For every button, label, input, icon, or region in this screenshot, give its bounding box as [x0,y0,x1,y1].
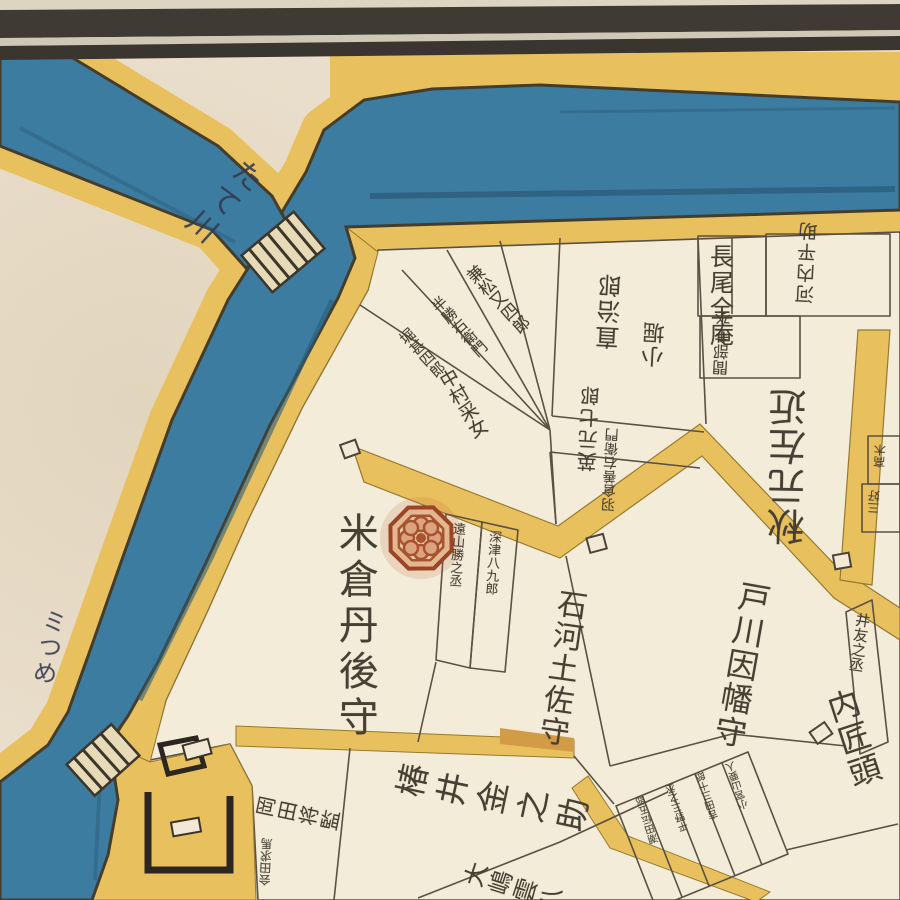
plot-label-edge2: 三好 [867,490,880,515]
plot-label-aida: 会田求馬 [259,840,274,887]
plot-label-hanamoto: 英元七郎 [579,416,602,473]
plot-label-kobori-surname: 小堀 [643,319,668,368]
plot-label-nagao: 長尾全庵 [706,244,730,308]
map-frame-bars [0,0,900,60]
woodblock-map-canvas: 米倉丹後守 石河土佐守 戸川因幡守 椿井金之助 直治郎 小堀 兼松又四郎 半勝右… [0,0,900,900]
plot-label-yonekura: 米倉丹後守 [334,512,375,742]
plot-label-hagura: 羽倉善右衛門 [603,458,620,513]
plot-label-akimoto: 秋元左近 [771,386,813,547]
plot-label-kobori-name: 直治郎 [598,271,627,350]
map-graphics [0,0,900,900]
plot-label-edge1: 高木 [873,444,886,469]
plot-label-kawachi: 河内平助 [796,244,818,305]
plot-label-mabe: 間部主水 [715,324,734,377]
